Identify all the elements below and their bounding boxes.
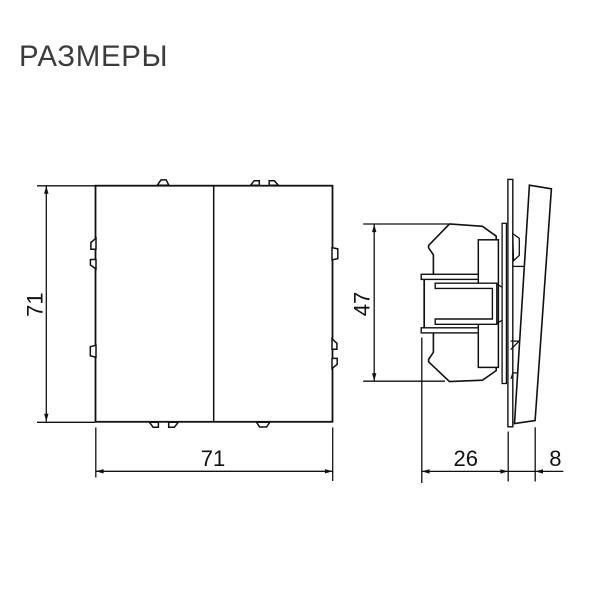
- svg-text:РАЗМЕРЫ: РАЗМЕРЫ: [19, 40, 168, 73]
- svg-text:71: 71: [22, 292, 47, 316]
- svg-text:26: 26: [454, 446, 478, 471]
- svg-text:71: 71: [201, 446, 225, 471]
- svg-text:47: 47: [349, 292, 374, 316]
- svg-text:8: 8: [549, 446, 561, 471]
